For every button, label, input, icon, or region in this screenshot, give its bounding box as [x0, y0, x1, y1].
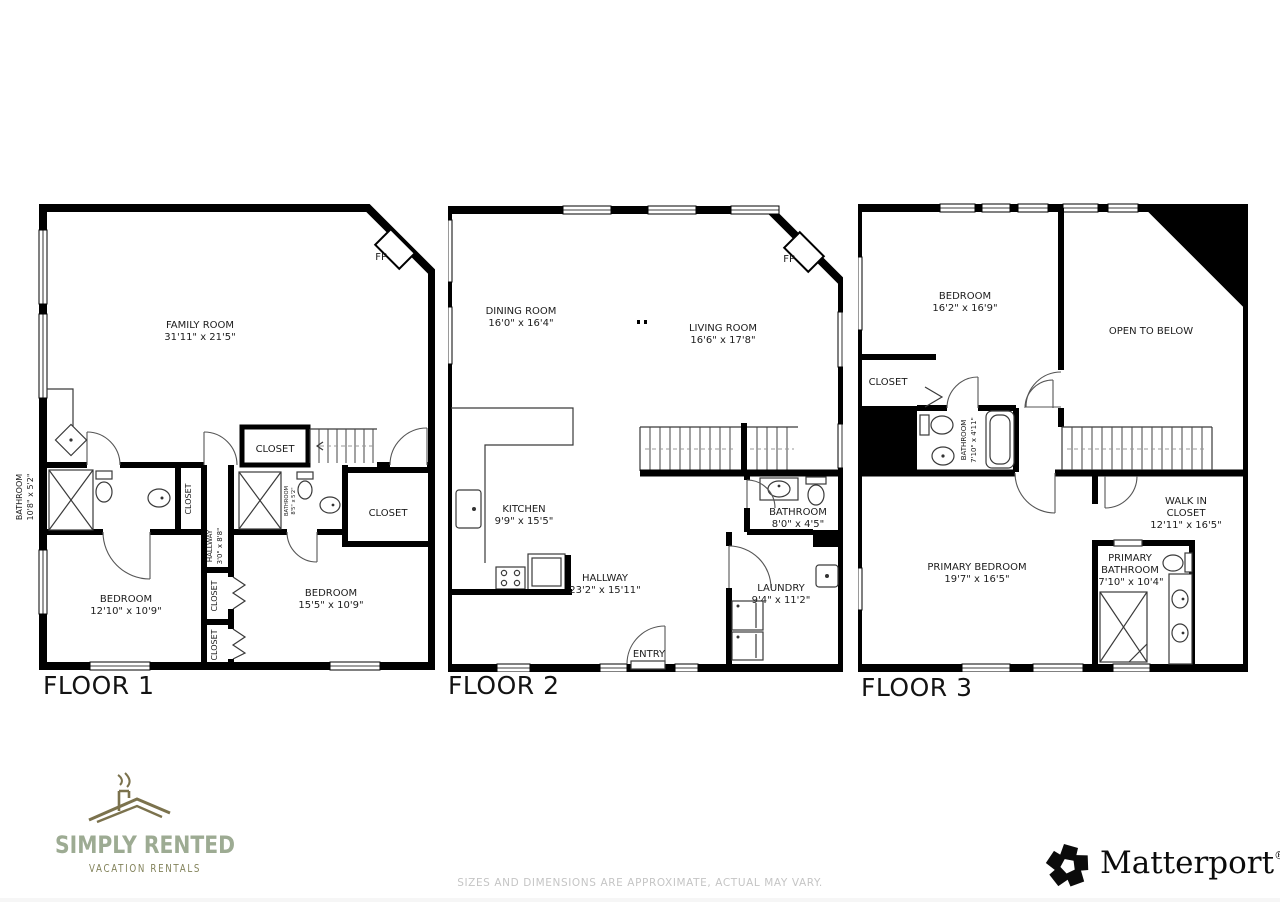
room-label-bathroom: BATHROOM — [769, 507, 827, 518]
floor-3-plan: BEDROOM 16'2" x 16'9" OPEN TO BELOW CLOS… — [858, 202, 1248, 672]
room-dims-family-room: 31'11" x 21'5" — [164, 332, 236, 343]
room-label-bathroom: BATHROOM — [960, 420, 968, 461]
matterport-name: Matterport — [1100, 845, 1274, 881]
room-label-closet-a: CLOSET — [210, 580, 219, 611]
room-label-open-to-below: OPEN TO BELOW — [1109, 326, 1193, 337]
room-dims-bathroom: 8'0" x 4'5" — [772, 519, 824, 530]
matterport-registered-mark: ® — [1274, 849, 1280, 862]
room-dims-bedroom-right: 15'5" x 10'9" — [298, 600, 363, 611]
room-label-bedroom-left: BEDROOM — [100, 594, 152, 605]
room-dims-hallway: 3'0" x 8'8" — [216, 528, 224, 565]
roof-icon — [89, 773, 170, 822]
room-dims-kitchen: 9'9" x 15'5" — [495, 516, 554, 527]
room-label-closet-strip: CLOSET — [184, 483, 193, 514]
room-dims-dining: 16'0" x 16'4" — [488, 318, 553, 329]
room-label-walk-in-1: WALK IN — [1165, 496, 1207, 507]
room-label-closet-top: CLOSET — [256, 444, 296, 455]
room-label-bedroom: BEDROOM — [939, 291, 991, 302]
floor-1-label: FLOOR 1 — [43, 671, 155, 700]
room-label-dining: DINING ROOM — [486, 306, 557, 317]
room-label-hallway: HALLWAY — [582, 573, 629, 584]
disclaimer-text: SIZES AND DIMENSIONS ARE APPROXIMATE, AC… — [457, 877, 823, 889]
page-bottom-strip — [0, 898, 1280, 902]
room-label-bathroom-left: BATHROOM — [15, 474, 24, 520]
room-dims-hallway: 23'2" x 15'11" — [569, 585, 641, 596]
room-dims-bathroom: 7'10" x 4'11" — [970, 417, 978, 463]
room-dims-bathroom-small: 8'5" x 5'2" — [291, 487, 297, 514]
room-dims-living: 16'6" x 17'8" — [690, 335, 755, 346]
room-label-closet-b: CLOSET — [210, 629, 219, 660]
room-label-primary-bath-2: BATHROOM — [1101, 565, 1159, 576]
room-label-entry: ENTRY — [633, 649, 666, 660]
floorplan-page: FP — [0, 0, 1280, 902]
room-label-walk-in-2: CLOSET — [1167, 508, 1207, 519]
room-label-primary-bath-1: PRIMARY — [1108, 553, 1153, 564]
fireplace-label: FP — [783, 254, 795, 265]
matterport-icon — [1044, 841, 1092, 891]
room-label-bedroom-right: BEDROOM — [305, 588, 357, 599]
floor-3-label: FLOOR 3 — [861, 673, 973, 702]
room-label-family-room: FAMILY ROOM — [166, 320, 234, 331]
room-dims-primary-bedroom: 19'7" x 16'5" — [944, 574, 1009, 585]
room-dims-bedroom-left: 12'10" x 10'9" — [90, 606, 162, 617]
room-dims-walk-in: 12'11" x 16'5" — [1150, 520, 1222, 531]
room-label-kitchen: KITCHEN — [502, 504, 545, 515]
matterport-wordmark: Matterport® — [1100, 845, 1280, 881]
floor-1-plan: FP — [10, 202, 435, 672]
fireplace-label: FP — [375, 252, 387, 263]
room-label-closet-right: CLOSET — [369, 508, 409, 519]
room-label-hallway: HALLWAY — [206, 529, 214, 562]
floor-2-label: FLOOR 2 — [448, 671, 560, 700]
simply-rented-logo: SIMPLY RENTED VACATION RENTALS — [40, 765, 250, 895]
room-dims-primary-bath: 7'10" x 10'4" — [1098, 577, 1163, 588]
simply-rented-title: SIMPLY RENTED — [55, 831, 235, 859]
room-label-closet: CLOSET — [869, 377, 909, 388]
room-label-laundry: LAUNDRY — [757, 583, 805, 594]
room-label-primary-bedroom: PRIMARY BEDROOM — [927, 562, 1026, 573]
room-dims-laundry: 9'4" x 11'2" — [752, 595, 811, 606]
room-label-living: LIVING ROOM — [689, 323, 757, 334]
room-label-bathroom-small: BATHROOM — [284, 486, 290, 516]
simply-rented-subtitle: VACATION RENTALS — [89, 863, 201, 875]
room-dims-bathroom-left: 10'8" x 5'2" — [26, 473, 35, 520]
room-dims-bedroom: 16'2" x 16'9" — [932, 303, 997, 314]
floor-2-plan: FP — [448, 202, 843, 672]
